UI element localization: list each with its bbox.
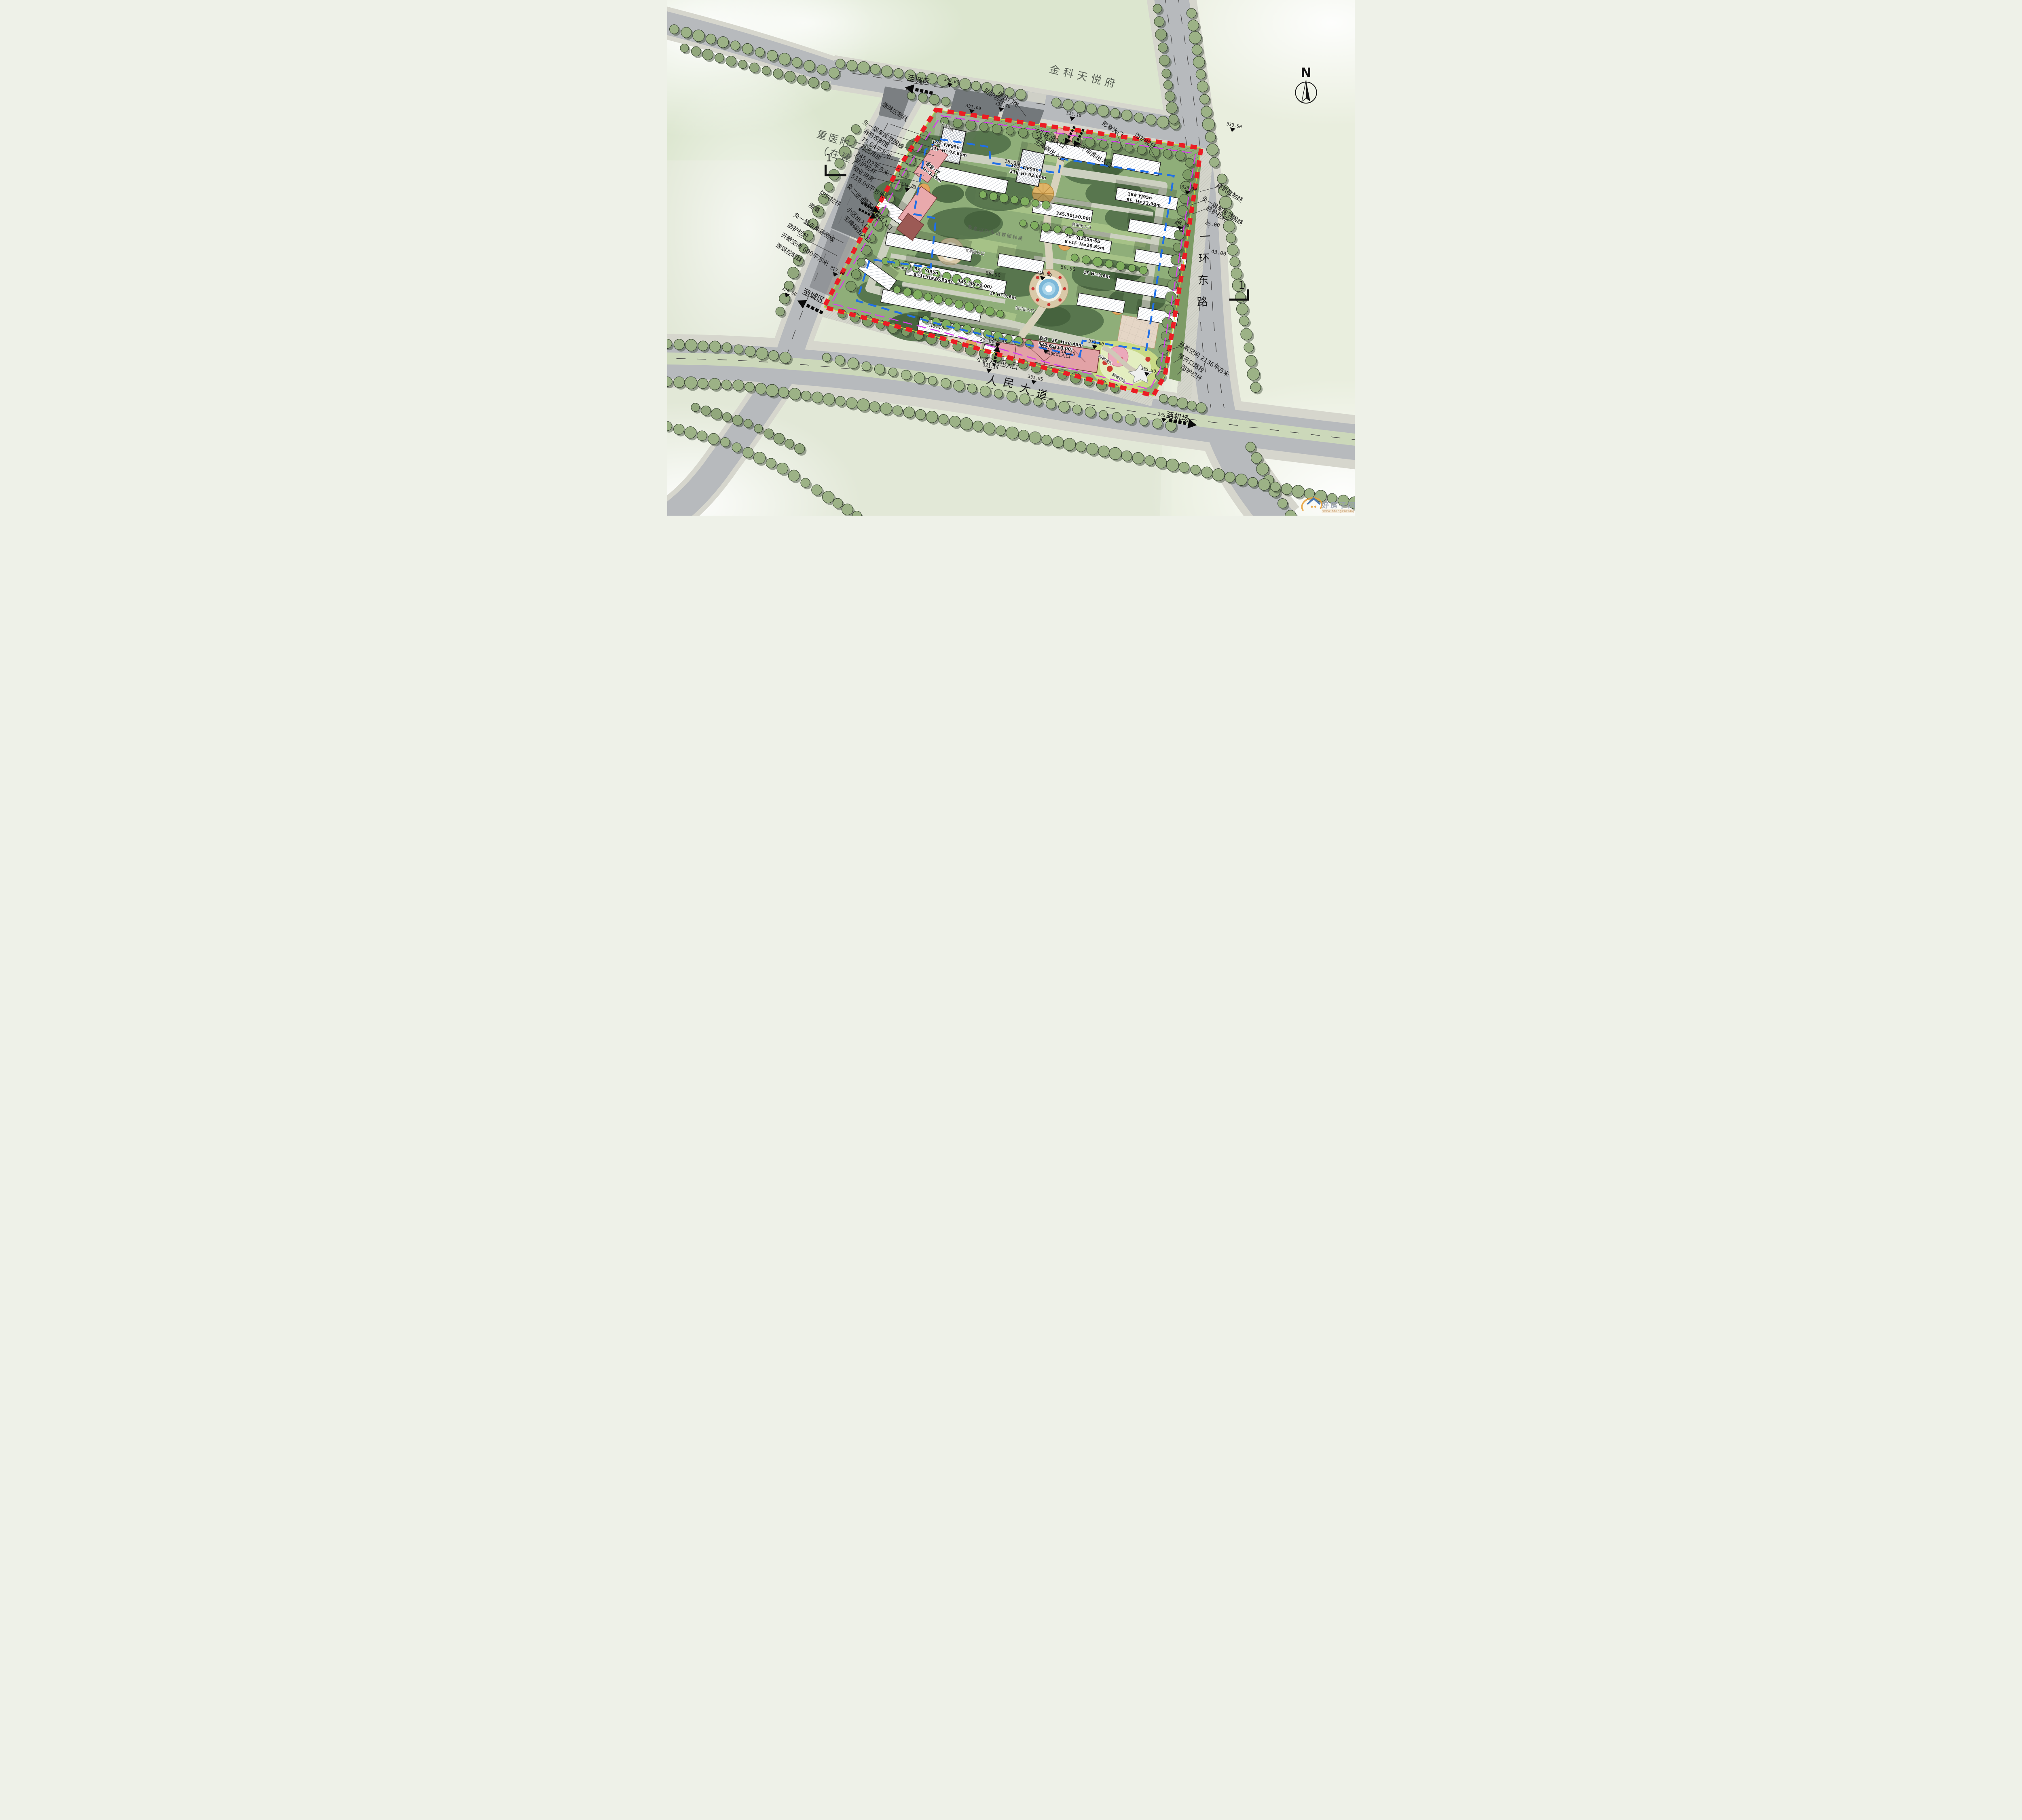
watermark-name: 好房子网 bbox=[1321, 501, 1355, 510]
master-plan-drawing: 金科天悦府 重医附二院 （在建） 人 民 大 道 一 环 东 路 至城区 至城区… bbox=[667, 0, 1355, 516]
svg-text:一: 一 bbox=[1199, 231, 1212, 243]
compass-n-label: N bbox=[1301, 66, 1311, 80]
watermark-url: www.hfangziwang.com bbox=[1322, 509, 1355, 513]
svg-text:环: 环 bbox=[1198, 252, 1211, 265]
svg-text:2F: 2F bbox=[1051, 338, 1058, 344]
svg-text:路: 路 bbox=[1197, 296, 1209, 309]
section-number: 1 bbox=[1238, 279, 1245, 292]
site-plan-page: 金科天悦府 重医附二院 （在建） 人 民 大 道 一 环 东 路 至城区 至城区… bbox=[667, 0, 1355, 516]
section-number: 1 bbox=[826, 152, 832, 164]
watermark-dot-icon bbox=[1311, 506, 1313, 508]
svg-text:东: 东 bbox=[1197, 274, 1210, 287]
watermark-dot-icon bbox=[1314, 506, 1316, 508]
svg-text:8F: 8F bbox=[1126, 197, 1133, 203]
